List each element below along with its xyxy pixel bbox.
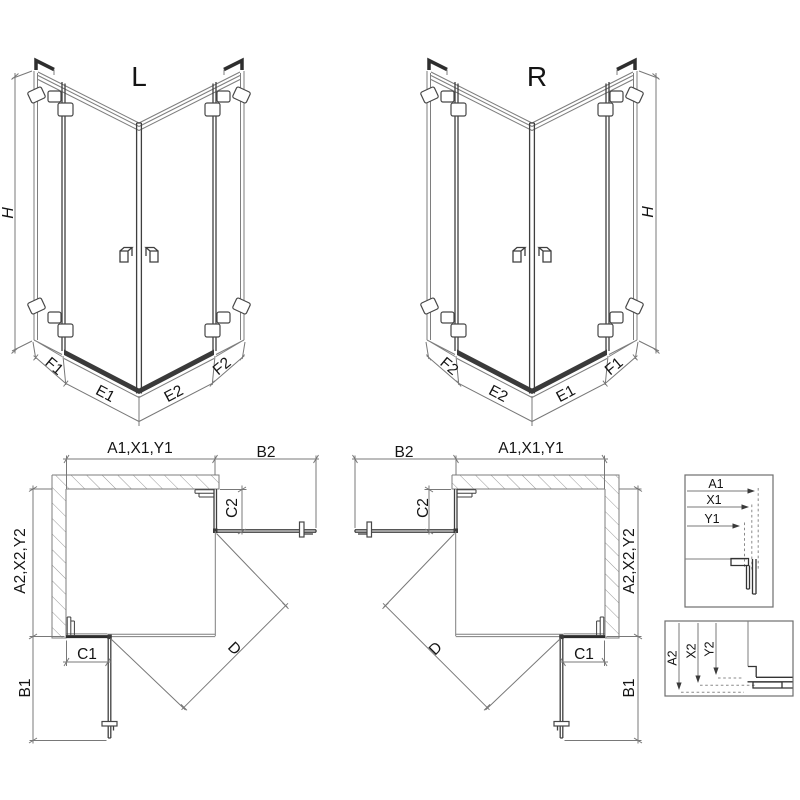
variant-label-right: R [527,61,547,92]
dim-label-c2: C2 [224,498,241,518]
segment-label-f1: F1 [41,354,66,379]
dim-label-b2: B2 [395,444,414,461]
detail-label-y1: Y1 [704,512,719,526]
dim-label-a2x2y2: A2,X2,Y2 [621,528,638,594]
iso-view-left: L H F1 E1 E2 F2 [0,61,251,427]
iso-view-right: R H F2 E2 E1 F1 [420,61,659,427]
plan-view-left: A1,X1,Y1 B2 A2,X2,Y2 B1 C1 C2 D [12,440,319,744]
dim-label-a1x1y1: A1,X1,Y1 [498,440,564,457]
dim-label-a1x1y1: A1,X1,Y1 [107,440,173,457]
profile-section [748,667,793,689]
segment-label-f1: F1 [602,354,627,379]
profile-section [731,559,756,595]
segment-label-e2: E2 [162,382,187,406]
technical-drawing-page: L H F1 E1 E2 F2 R H F2 E2 E1 F1 A1,X1,Y1… [0,0,800,800]
detail-label-y2: Y2 [703,641,717,656]
dim-label-b1: B1 [621,679,638,698]
shower-enclosure-drawing: L H F1 E1 E2 F2 R H F2 E2 E1 F1 A1,X1,Y1… [0,0,800,800]
segment-label-e1: E1 [93,382,118,406]
height-label: H [0,207,17,219]
dim-label-c1: C1 [77,646,97,663]
walls [452,475,619,638]
detail-inset-bottom: A2 X2 Y2 [665,621,793,696]
detail-label-a2: A2 [666,650,680,665]
dim-label-b2: B2 [257,444,276,461]
dim-label-c1: C1 [574,646,594,663]
walls [52,475,219,638]
dim-label-a2x2y2: A2,X2,Y2 [12,528,29,594]
detail-label-x2: X2 [685,643,699,658]
detail-label-x1: X1 [706,493,721,507]
dim-label-d: D [224,639,244,659]
dim-label-c2: C2 [415,498,432,518]
variant-label-left: L [131,61,147,92]
segment-label-e2: E2 [486,382,511,406]
height-label: H [640,206,657,218]
plan-view-right: B2 A1,X1,Y1 C2 C1 A2,X2,Y2 B1 D [352,440,642,744]
segment-label-e1: E1 [554,382,579,406]
dim-label-d: D [426,639,446,659]
detail-inset-top: A1 X1 Y1 [685,475,773,607]
dim-label-b1: B1 [17,679,34,698]
detail-label-a1: A1 [708,477,723,491]
